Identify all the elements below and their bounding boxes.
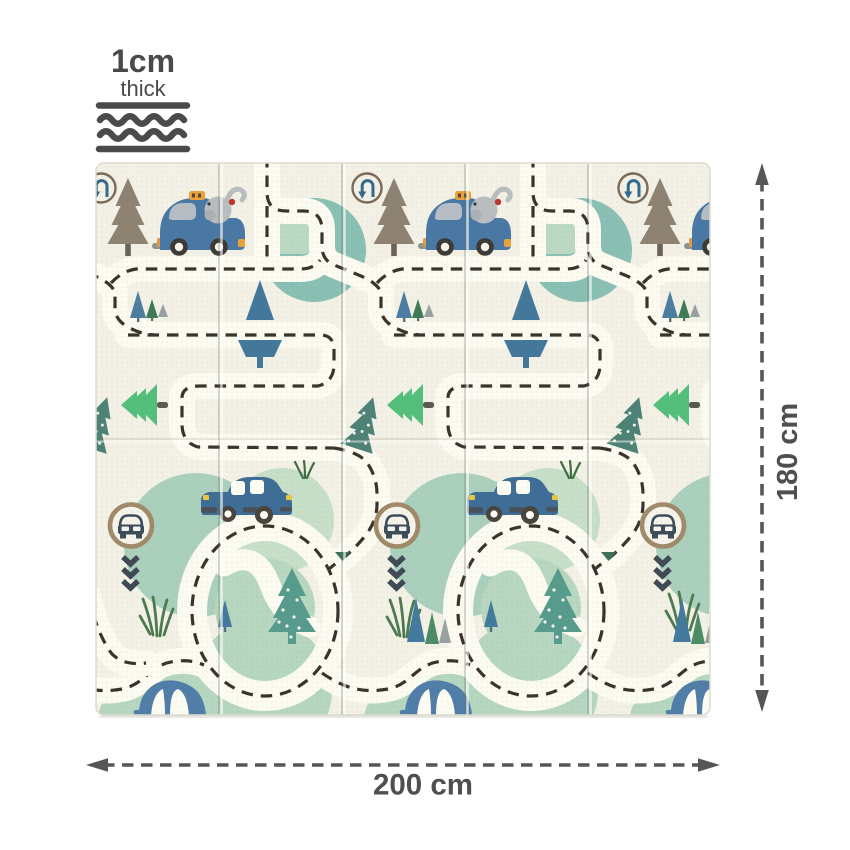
svg-text:200 cm: 200 cm — [373, 769, 473, 802]
svg-text:180 cm: 180 cm — [772, 403, 804, 501]
svg-text:thick: thick — [120, 76, 166, 101]
svg-text:1cm: 1cm — [111, 43, 175, 79]
